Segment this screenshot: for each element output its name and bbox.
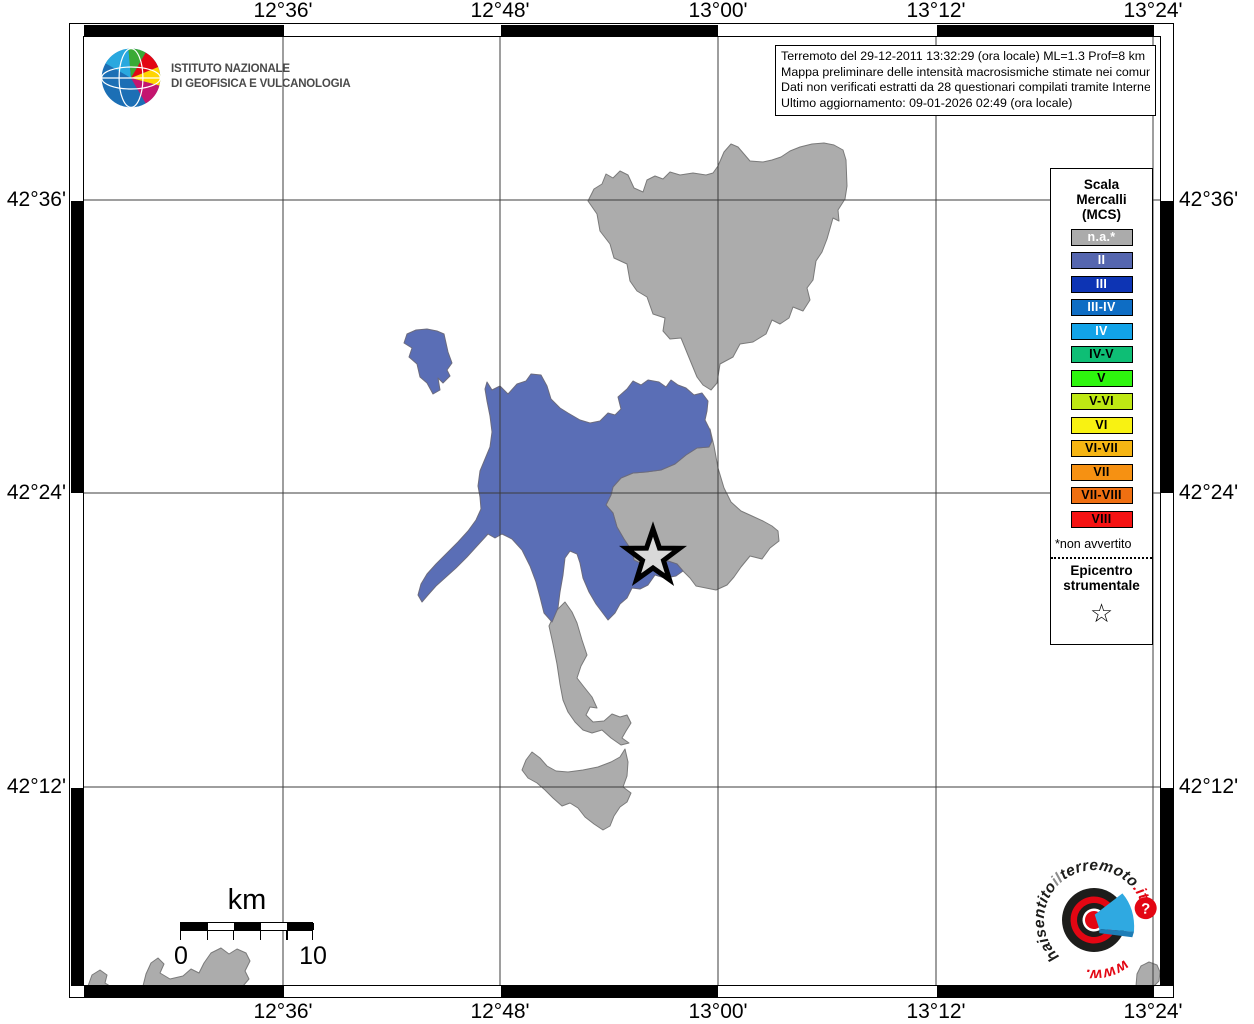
- legend-swatch-label: V-VI: [1089, 394, 1114, 408]
- legend-swatch-label: III-IV: [1087, 300, 1115, 314]
- info-line-map-type: Mappa preliminare delle intensità macros…: [781, 65, 1150, 81]
- ingv-name-line2: DI GEOFISICA E VULCANOLOGIA: [171, 77, 350, 92]
- legend-swatch-label: II: [1098, 253, 1106, 267]
- legend-swatch-v: V: [1071, 370, 1133, 387]
- legend-box: Scala Mercalli (MCS) n.a.* II III III-IV…: [1050, 168, 1153, 645]
- legend-swatch-viii: VIII: [1071, 511, 1133, 528]
- map-frame-inner: [83, 36, 1161, 986]
- axis-label-lon: 13°00': [668, 0, 768, 22]
- legend-swatch-label: VII-VIII: [1081, 488, 1122, 502]
- axis-label-lon: 12°48': [450, 0, 550, 22]
- scale-bar-start: 0: [151, 942, 211, 971]
- haisentitoilterremoto-logo: ? haisentitoilterremoto.it www.: [1018, 844, 1170, 996]
- legend-swatch-label: n.a.*: [1088, 230, 1116, 244]
- axis-label-lon: 13°00': [668, 1001, 768, 1023]
- earthquake-info-box: Terremoto del 29-12-2011 13:32:29 (ora l…: [775, 45, 1156, 116]
- legend-swatch-ii: II: [1071, 252, 1133, 269]
- axis-label-lat: 42°36': [1179, 189, 1254, 211]
- legend-swatch-label: IV-V: [1089, 347, 1114, 361]
- legend-swatch-vi-vii: VI-VII: [1071, 440, 1133, 457]
- axis-label-lon: 12°36': [233, 1001, 333, 1023]
- axis-label-lon: 13°24': [1103, 1001, 1203, 1023]
- scale-bar-tick: [233, 931, 234, 940]
- legend-title-line3: (MCS): [1051, 207, 1152, 222]
- axis-label-lat: 42°36': [0, 189, 66, 211]
- earthquake-intensity-map-page: 12°36' 12°48' 13°00' 13°12' 13°24' 12°36…: [0, 0, 1254, 1024]
- axis-label-lat: 42°12': [1179, 776, 1254, 798]
- epicenter-star-icon: ☆: [1051, 598, 1152, 628]
- legend-swatch-vii-viii: VII-VIII: [1071, 487, 1133, 504]
- scale-bar-tick: [180, 931, 181, 940]
- legend-epicenter-line2: strumentale: [1051, 578, 1152, 594]
- scale-bar-end: 10: [283, 942, 343, 971]
- scale-bar-tick: [312, 931, 313, 940]
- axis-label-lon: 13°12': [886, 1001, 986, 1023]
- legend-swatch-iv-v: IV-V: [1071, 346, 1133, 363]
- question-mark: ?: [1141, 900, 1151, 917]
- legend-swatch-label: V: [1097, 371, 1106, 385]
- legend-title-line1: Scala: [1051, 177, 1152, 192]
- scale-bar-tick: [207, 931, 208, 940]
- ingv-globe-icon: [98, 45, 164, 111]
- legend-swatch-vii: VII: [1071, 464, 1133, 481]
- legend-swatch-v-vi: V-VI: [1071, 393, 1133, 410]
- ingv-name-line1: ISTITUTO NAZIONALE: [171, 62, 350, 77]
- axis-label-lon: 12°48': [450, 1001, 550, 1023]
- axis-label-lat: 42°12': [0, 776, 66, 798]
- legend-swatch-iv: IV: [1071, 323, 1133, 340]
- info-line-data-source: Dati non verificati estratti da 28 quest…: [781, 80, 1150, 96]
- info-line-updated: Ultimo aggiornamento: 09-01-2026 02:49 (…: [781, 96, 1150, 112]
- legend-footnote: *non avvertito: [1051, 537, 1152, 551]
- axis-label-lat: 42°24': [0, 482, 66, 504]
- scale-bar: [180, 922, 313, 931]
- legend-swatch-label: VII: [1093, 465, 1109, 479]
- axis-label-lat: 42°24': [1179, 482, 1254, 504]
- scale-bar-segment: [287, 923, 314, 930]
- scale-bar-tick: [286, 931, 287, 940]
- axis-label-lon: 12°36': [233, 0, 333, 22]
- legend-swatch-vi: VI: [1071, 417, 1133, 434]
- legend-swatch-iii-iv: III-IV: [1071, 299, 1133, 316]
- logo-www-text: www.: [1080, 955, 1133, 987]
- info-line-event: Terremoto del 29-12-2011 13:32:29 (ora l…: [781, 49, 1150, 65]
- legend-swatch-label: VI-VII: [1085, 441, 1118, 455]
- legend-title-line2: Mercalli: [1051, 192, 1152, 207]
- scale-bar-segment: [181, 923, 208, 930]
- legend-swatch-label: IV: [1095, 324, 1107, 338]
- legend-swatch-na: n.a.*: [1071, 229, 1133, 246]
- legend-swatch-iii: III: [1071, 276, 1133, 293]
- legend-epicenter-line1: Epicentro: [1051, 563, 1152, 579]
- axis-label-lon: 13°12': [886, 0, 986, 22]
- scale-bar-segment: [234, 923, 261, 930]
- legend-swatch-label: VIII: [1092, 512, 1112, 526]
- ingv-logo: ISTITUTO NAZIONALE DI GEOFISICA E VULCAN…: [98, 45, 358, 113]
- legend-title: Scala Mercalli (MCS): [1051, 177, 1152, 222]
- legend-divider: [1051, 557, 1152, 559]
- axis-label-lon: 13°24': [1103, 0, 1203, 22]
- legend-swatch-label: III: [1096, 277, 1107, 291]
- scale-bar-unit: km: [216, 884, 278, 917]
- legend-swatch-label: VI: [1095, 418, 1107, 432]
- logo-text-www: www.: [1080, 955, 1133, 987]
- scale-bar-tick: [260, 931, 261, 940]
